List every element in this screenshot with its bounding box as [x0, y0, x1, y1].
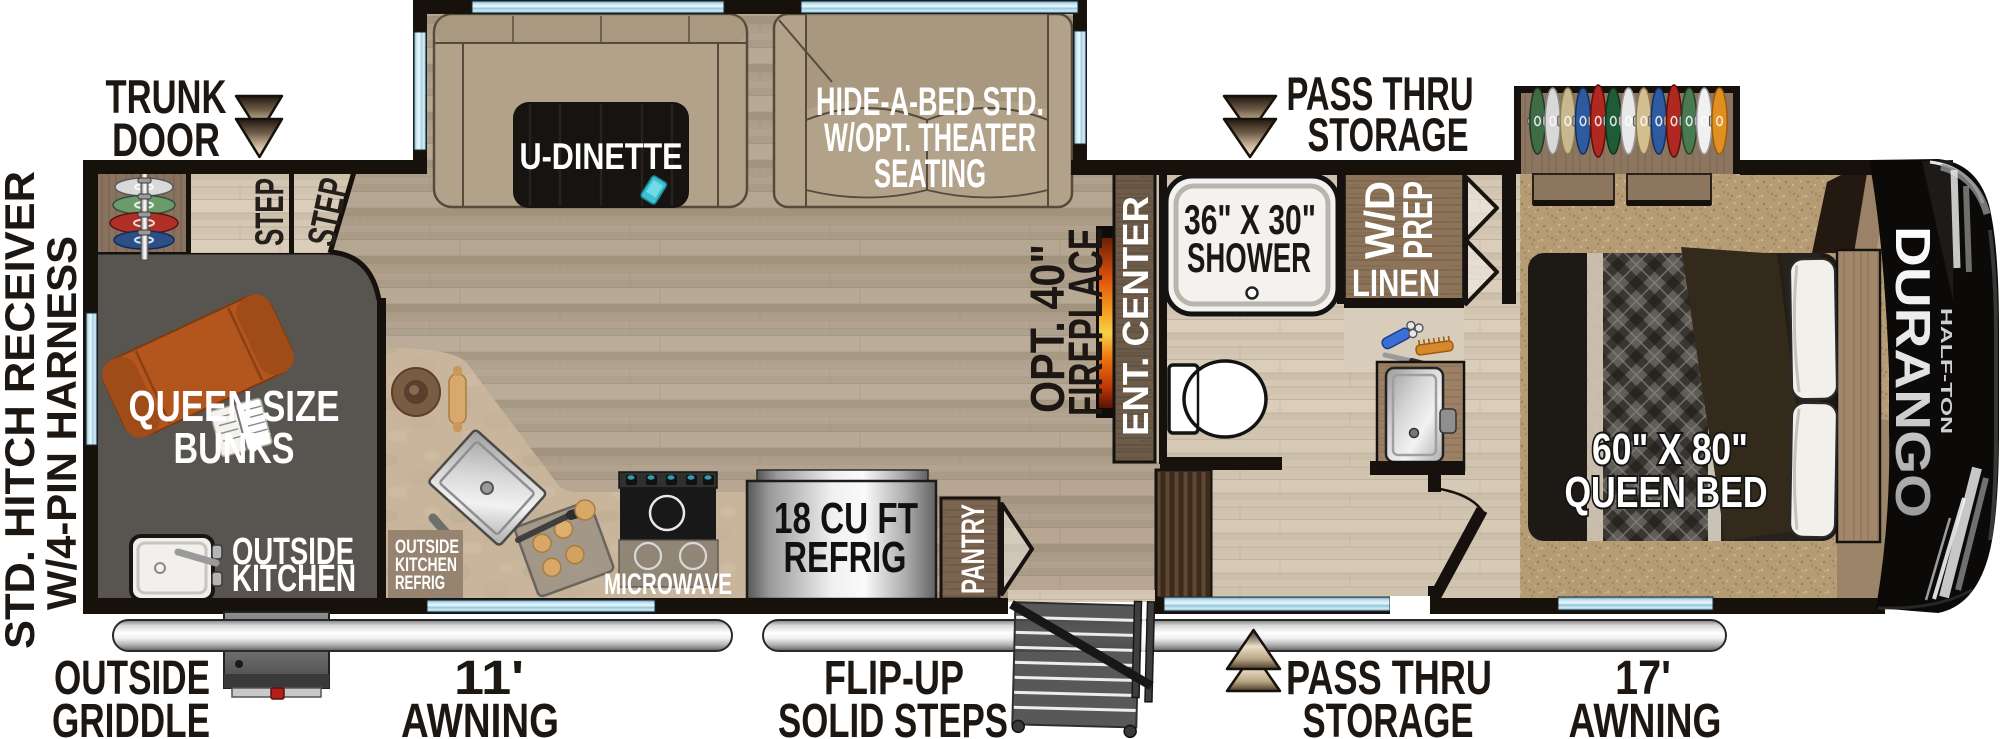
svg-text:60" X 80": 60" X 80": [1592, 425, 1748, 474]
svg-text:GRIDDLE: GRIDDLE: [52, 695, 210, 739]
svg-text:QUEEN BED: QUEEN BED: [1565, 468, 1768, 517]
svg-text:REFRIG: REFRIG: [784, 533, 907, 582]
svg-text:REFRIG: REFRIG: [395, 573, 445, 594]
svg-text:DOOR: DOOR: [112, 113, 220, 166]
svg-text:STORAGE: STORAGE: [1308, 108, 1469, 161]
svg-text:SHOWER: SHOWER: [1187, 234, 1311, 281]
svg-text:STD. HITCH RECEIVER: STD. HITCH RECEIVER: [0, 171, 43, 649]
svg-text:BUNKS: BUNKS: [174, 424, 295, 473]
svg-text:SEATING: SEATING: [874, 152, 986, 196]
svg-text:SOLID STEPS: SOLID STEPS: [778, 695, 1008, 739]
svg-text:KITCHEN: KITCHEN: [232, 558, 356, 600]
svg-text:PANTRY: PANTRY: [955, 504, 991, 594]
svg-text:ENT. CENTER: ENT. CENTER: [1115, 196, 1156, 436]
svg-text:U-DINETTE: U-DINETTE: [520, 136, 683, 177]
svg-text:AWNING: AWNING: [1569, 695, 1722, 739]
svg-text:AWNING: AWNING: [401, 695, 559, 739]
svg-text:STEP: STEP: [248, 178, 292, 246]
svg-text:FIREPLACE: FIREPLACE: [1060, 228, 1113, 416]
svg-text:HALF-TON: HALF-TON: [1937, 308, 1954, 434]
svg-text:STORAGE: STORAGE: [1303, 695, 1474, 739]
svg-text:DURANGO: DURANGO: [1885, 226, 1939, 518]
svg-text:W/4-PIN HARNESS: W/4-PIN HARNESS: [38, 236, 85, 610]
svg-text:MICROWAVE: MICROWAVE: [604, 568, 732, 601]
svg-text:PREP: PREP: [1394, 181, 1441, 259]
